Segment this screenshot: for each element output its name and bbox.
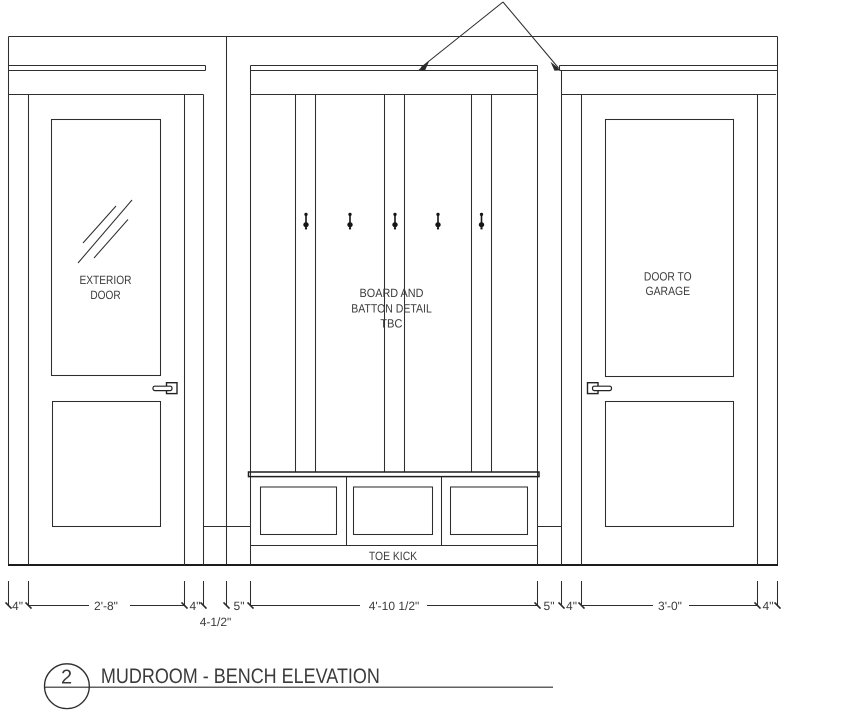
svg-text:TOE KICK: TOE KICK bbox=[369, 549, 417, 563]
svg-text:GARAGE: GARAGE bbox=[646, 284, 691, 298]
svg-text:4": 4" bbox=[12, 599, 23, 613]
svg-text:DOOR: DOOR bbox=[90, 288, 121, 302]
svg-text:4": 4" bbox=[763, 599, 774, 613]
svg-text:4": 4" bbox=[190, 599, 201, 613]
svg-text:BOARD AND: BOARD AND bbox=[360, 286, 424, 300]
svg-text:DOOR TO: DOOR TO bbox=[644, 269, 692, 283]
svg-text:MUDROOM - BENCH ELEVATION: MUDROOM - BENCH ELEVATION bbox=[101, 665, 380, 688]
svg-text:EXTERIOR: EXTERIOR bbox=[79, 273, 131, 287]
svg-text:4": 4" bbox=[566, 599, 577, 613]
svg-text:3'-0": 3'-0" bbox=[658, 599, 682, 613]
svg-text:4'-10 1/2": 4'-10 1/2" bbox=[369, 599, 420, 613]
svg-text:5": 5" bbox=[234, 599, 245, 613]
svg-text:5": 5" bbox=[544, 599, 555, 613]
svg-text:4-1/2": 4-1/2" bbox=[200, 615, 232, 629]
svg-text:2: 2 bbox=[61, 667, 72, 689]
svg-text:2'-8": 2'-8" bbox=[94, 599, 118, 613]
svg-text:BATTON DETAIL: BATTON DETAIL bbox=[351, 302, 432, 316]
svg-text:TBC: TBC bbox=[380, 316, 403, 330]
